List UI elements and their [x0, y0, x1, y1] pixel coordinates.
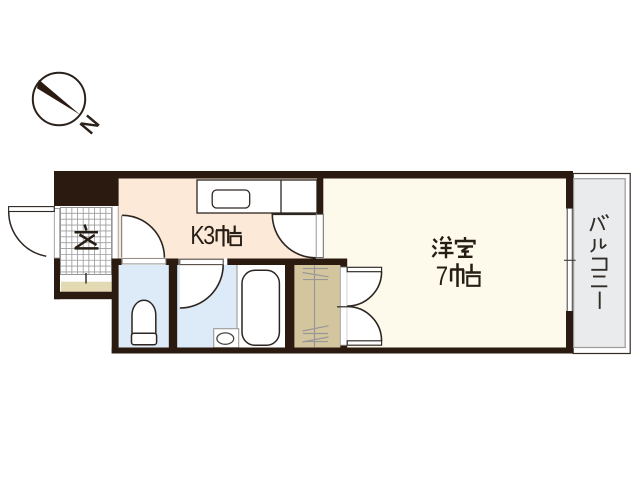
- svg-text:3: 3: [203, 221, 215, 251]
- svg-text:7: 7: [436, 262, 448, 291]
